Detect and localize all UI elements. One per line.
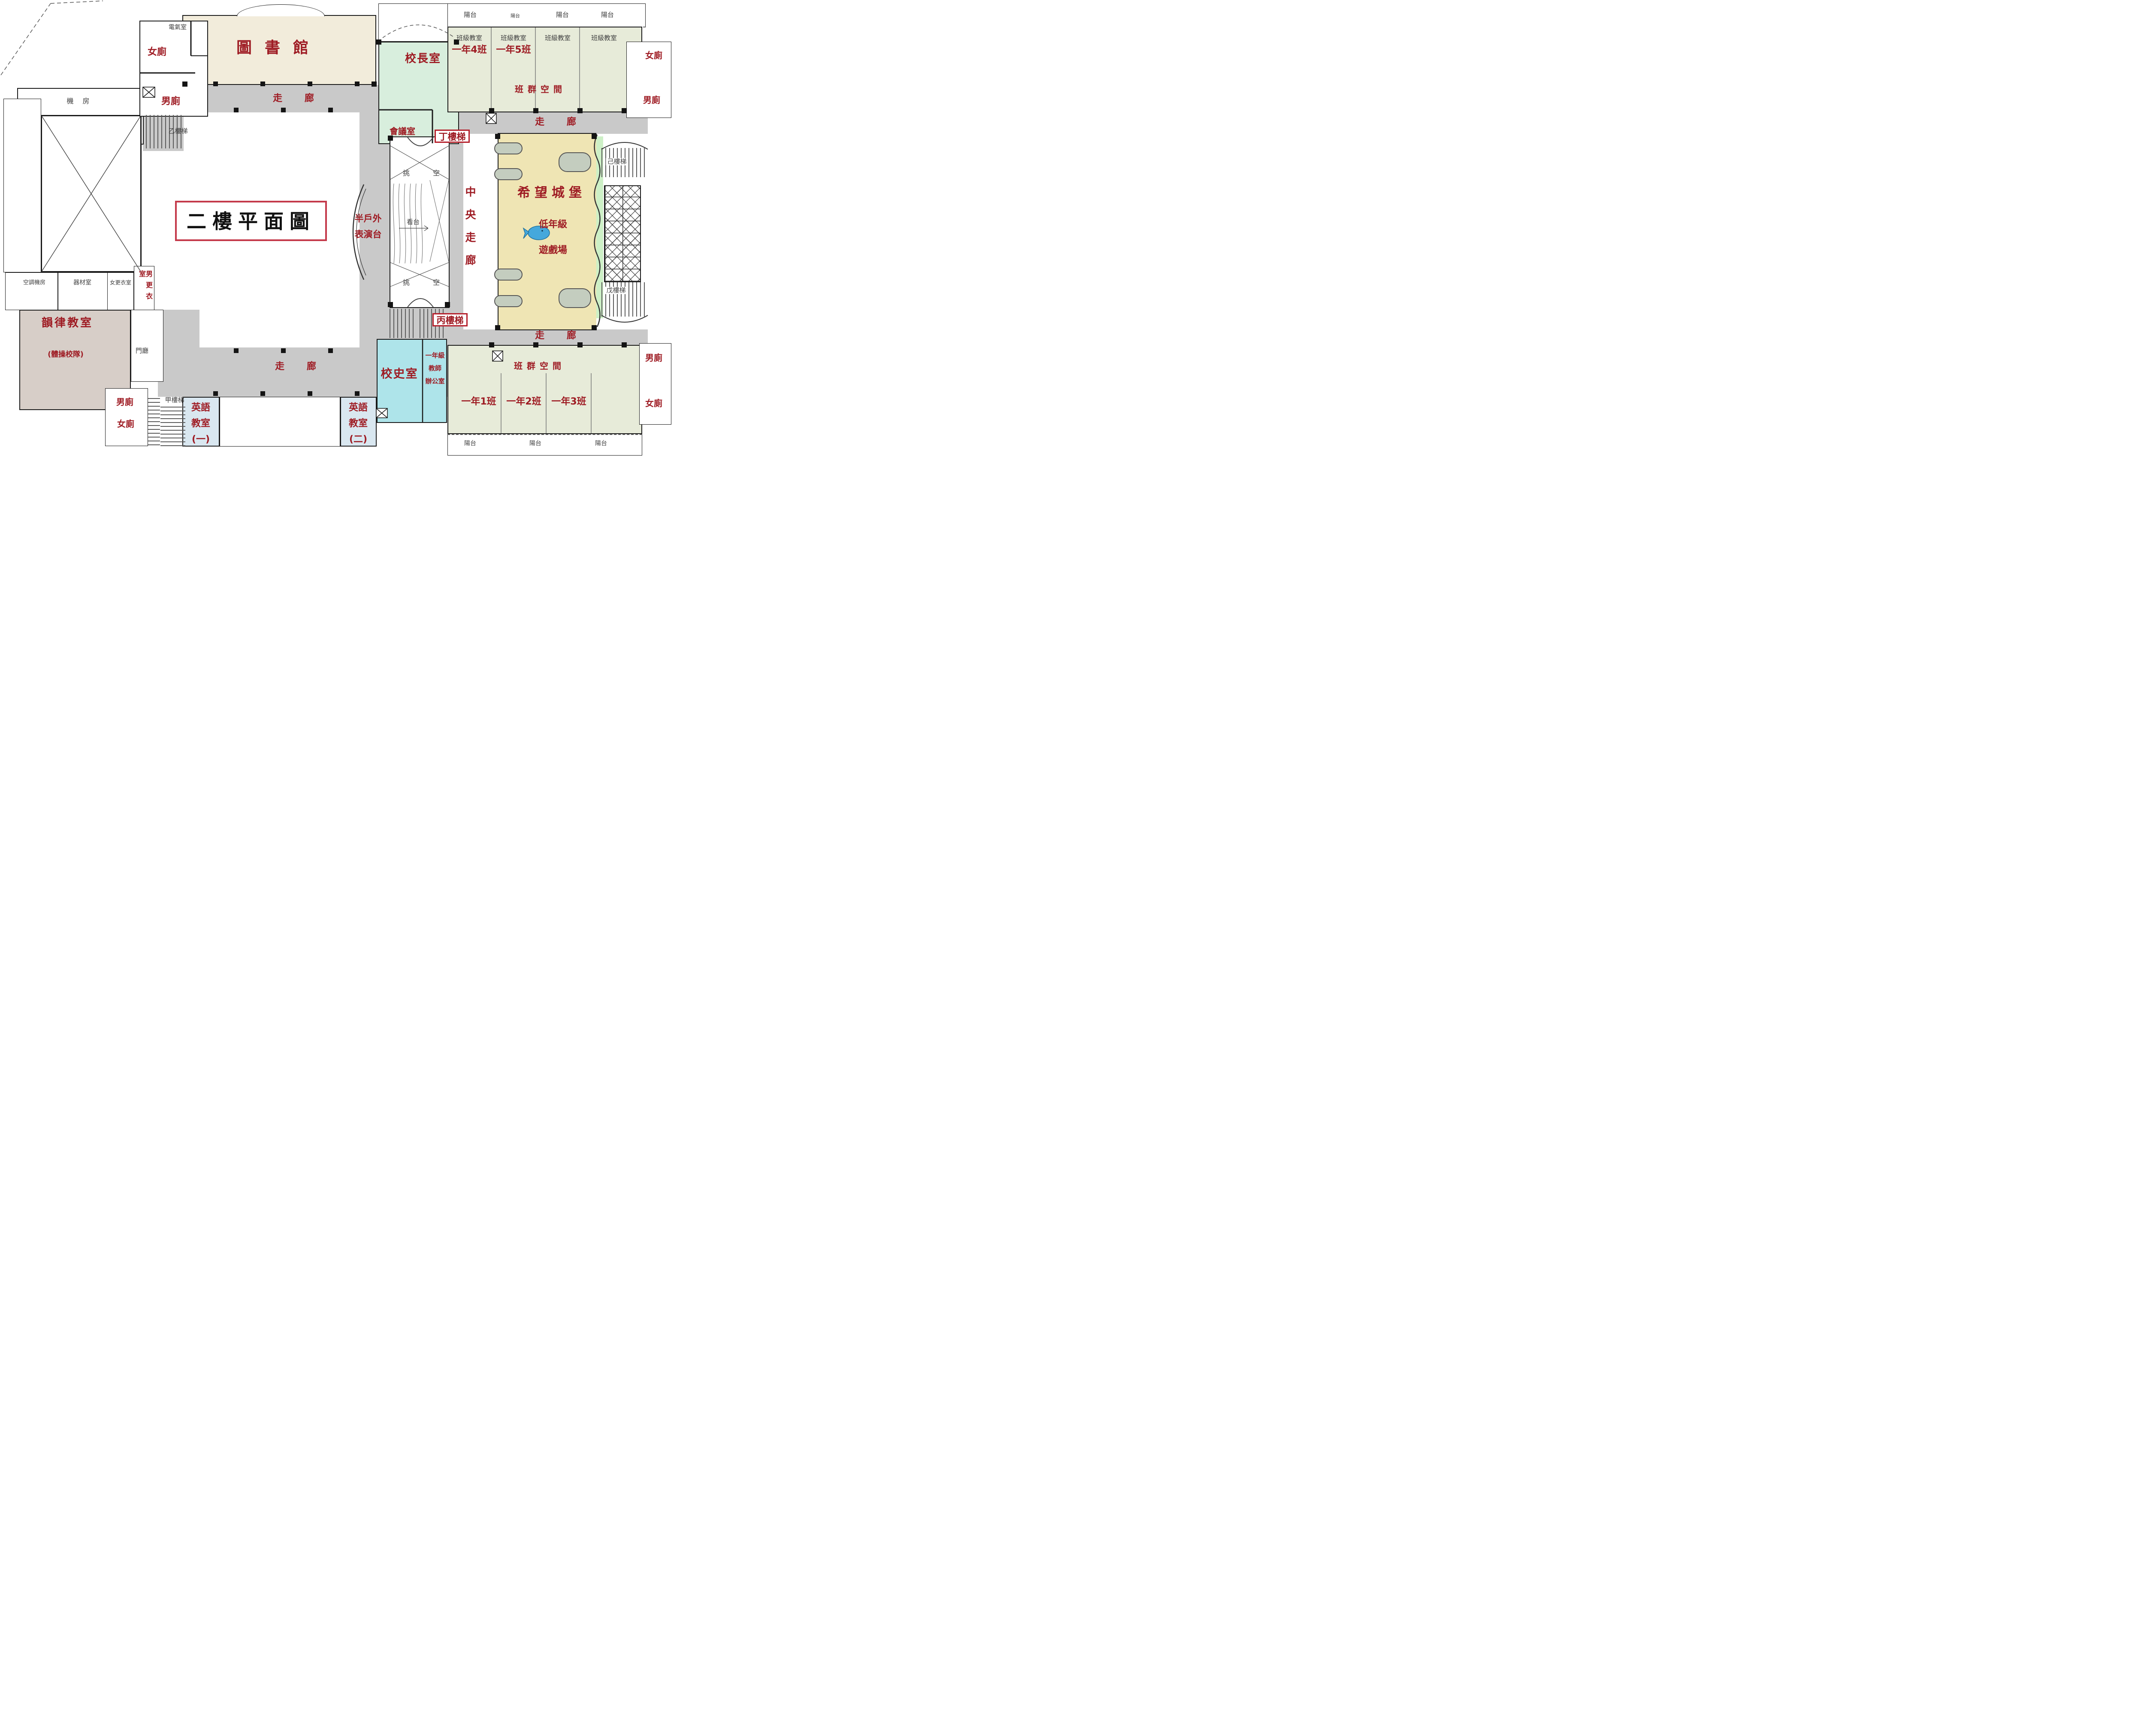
south-band xyxy=(220,397,340,447)
label-toilet-m-tl: 男廁 xyxy=(161,97,180,106)
label-void-bottom-l: 挑 xyxy=(403,279,410,286)
label-stair-f: 己樓梯 xyxy=(606,158,628,166)
label-teacher-office-3: 辦公室 xyxy=(425,378,444,385)
label-toilet-f-tl: 女廁 xyxy=(148,48,166,57)
label-stage-2: 表演台 xyxy=(355,230,382,239)
play-structure xyxy=(494,168,523,180)
label-balcony-t3: 陽台 xyxy=(556,12,569,18)
label-rhythm-team: (體操校隊) xyxy=(48,351,84,359)
stair-a-steps xyxy=(160,407,185,446)
stair-c-steps xyxy=(390,309,416,338)
classroom-band-bottom xyxy=(447,345,642,434)
label-void-top-r: 空 xyxy=(433,170,440,177)
label-toilet-f-tr: 女廁 xyxy=(645,51,662,60)
label-ac-machine: 空調機房 xyxy=(23,280,45,286)
label-central-corridor: 中央走廊 xyxy=(465,186,475,278)
stair-d-badge: 丁樓梯 xyxy=(435,130,470,143)
label-balcony-b1: 陽台 xyxy=(464,441,476,447)
label-void-top-l: 挑 xyxy=(403,170,410,177)
label-english1-1: 英語 xyxy=(191,403,210,413)
label-stage-1: 半戶外 xyxy=(355,214,382,223)
label-english2-1: 英語 xyxy=(349,403,368,413)
label-meeting: 會議室 xyxy=(390,127,415,136)
label-changing-m: 男更衣室 xyxy=(138,270,152,313)
label-electrical: 電氣室 xyxy=(169,24,187,30)
label-toilet-m-br: 男廁 xyxy=(645,353,662,362)
room-equipment xyxy=(58,272,108,310)
label-english1-no: (一) xyxy=(192,435,210,444)
label-balcony-t4: 陽台 xyxy=(601,12,614,18)
room-foyer xyxy=(131,310,163,382)
label-castle-sub2: 遊戲場 xyxy=(539,246,567,255)
label-balcony-t1: 陽台 xyxy=(464,12,477,18)
label-toilet-m-tr: 男廁 xyxy=(643,96,660,104)
label-hope-castle: 希望城堡 xyxy=(517,187,586,199)
label-classroom-3: 班級教室 xyxy=(545,35,571,42)
play-structure xyxy=(494,142,523,154)
play-structure xyxy=(559,288,591,308)
label-classroom-4: 班級教室 xyxy=(591,35,617,42)
label-stair-a: 甲樓梯 xyxy=(165,397,184,404)
label-class-group-top: 班群空間 xyxy=(515,85,566,94)
label-class-1-3: 一年3班 xyxy=(551,397,586,407)
label-void-bottom-r: 空 xyxy=(433,279,440,286)
label-class-group-bottom: 班群空間 xyxy=(514,362,565,370)
stair-steps xyxy=(148,398,160,445)
play-structure xyxy=(494,295,523,307)
label-class-1-5: 一年5班 xyxy=(496,45,531,55)
label-class-1-4: 一年4班 xyxy=(452,45,486,55)
play-structure xyxy=(559,152,591,172)
label-classroom-1: 班級教室 xyxy=(456,35,482,42)
gym-void xyxy=(41,115,142,272)
label-corridor-right-bottom: 走 廊 xyxy=(535,331,586,341)
label-stair-b: 乙樓梯 xyxy=(168,128,187,135)
label-class-1-2: 一年2班 xyxy=(506,397,541,407)
label-machine: 機 房 xyxy=(66,98,93,105)
balcony-strip-top xyxy=(447,3,646,27)
label-changing-f: 女更衣室 xyxy=(110,280,131,286)
label-stair-e: 戊樓梯 xyxy=(605,287,627,294)
label-corridor-right-top: 走 廊 xyxy=(535,118,586,127)
label-corridor-top: 走 廊 xyxy=(273,94,323,103)
label-castle-sub1: 低年級 xyxy=(539,220,567,229)
terrace-principal xyxy=(378,3,459,42)
label-classroom-2: 班級教室 xyxy=(501,35,526,42)
label-corridor-bottom: 走 廊 xyxy=(275,362,326,371)
locker-grid xyxy=(604,185,641,282)
label-balcony-t2: 陽台 xyxy=(511,14,520,18)
label-history: 校史室 xyxy=(381,368,418,380)
west-edge-rooms xyxy=(3,99,41,272)
label-balcony-b2: 陽台 xyxy=(529,441,541,447)
label-balcony-b3: 陽台 xyxy=(595,441,607,447)
label-rhythm: 韻律教室 xyxy=(42,317,93,329)
floor-plan: 二樓平面圖 圖書館 校長室 會議室 校史室 一年級 教師 辦公室 韻律教室 (體… xyxy=(0,0,673,456)
label-teacher-office-1: 一年級 xyxy=(425,353,444,359)
label-toilet-f-br: 女廁 xyxy=(645,399,662,408)
label-toilet-f-bl: 女廁 xyxy=(117,420,134,428)
page-title: 二樓平面圖 xyxy=(187,211,315,231)
label-stand: 看台 xyxy=(407,219,420,226)
room-changing-f xyxy=(107,272,134,310)
library-bay xyxy=(237,4,325,16)
label-library: 圖書館 xyxy=(236,40,321,56)
label-english1-2: 教室 xyxy=(191,419,210,429)
play-structure xyxy=(494,269,523,281)
stair-c-badge: 丙樓梯 xyxy=(432,313,468,326)
label-equipment: 器材室 xyxy=(73,280,91,286)
label-english2-no: (二) xyxy=(349,435,367,444)
room-ac-machine xyxy=(5,272,58,310)
label-class-1-1: 一年1班 xyxy=(461,397,496,407)
label-teacher-office-2: 教師 xyxy=(429,365,441,372)
label-foyer: 門廳 xyxy=(136,348,148,354)
stair-a-area xyxy=(163,310,199,383)
label-principal: 校長室 xyxy=(405,53,441,64)
label-toilet-m-bl: 男廁 xyxy=(116,398,133,406)
label-english2-2: 教室 xyxy=(349,419,368,429)
balcony-strip-bottom xyxy=(447,434,642,456)
